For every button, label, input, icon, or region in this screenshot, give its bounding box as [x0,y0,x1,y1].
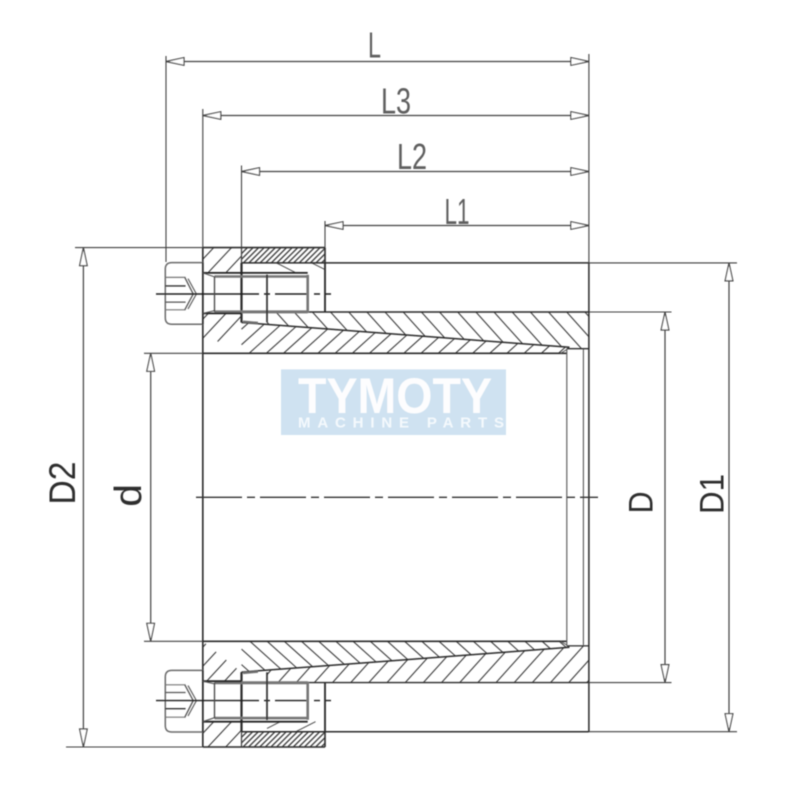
svg-text:L3: L3 [381,81,411,122]
svg-text:L1: L1 [445,191,470,232]
svg-text:D: D [623,491,661,513]
svg-text:L2: L2 [397,136,427,177]
svg-text:D2: D2 [42,462,83,505]
svg-text:d: d [108,484,150,507]
svg-text:L: L [368,25,381,66]
svg-text:D1: D1 [694,474,732,514]
